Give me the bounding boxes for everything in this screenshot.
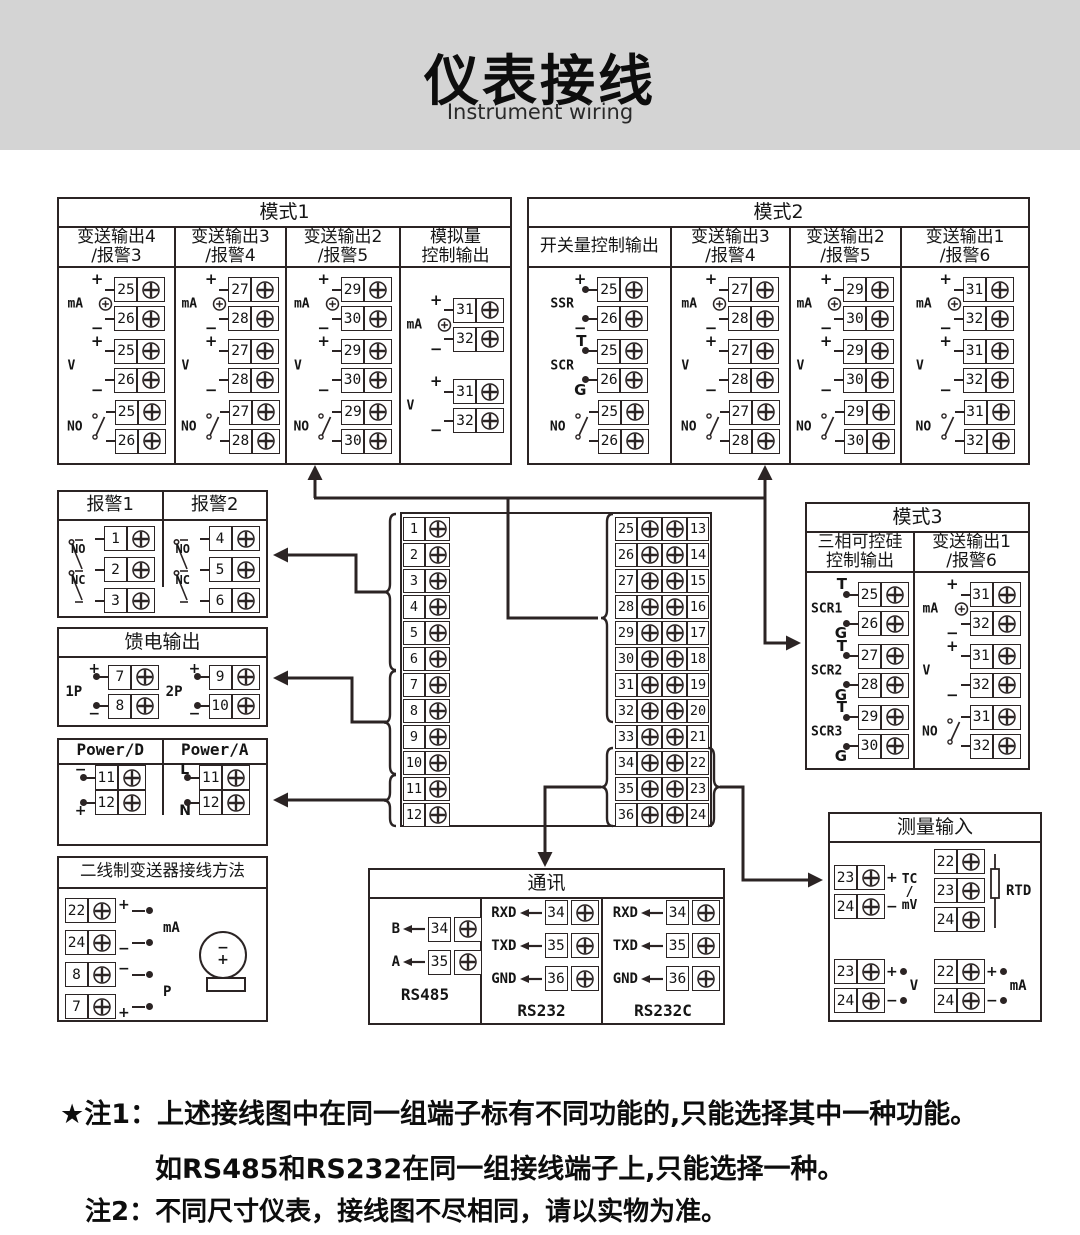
wire-group-v: +−V2930 bbox=[796, 339, 894, 393]
power-column-2: Power/AL11N12 bbox=[164, 740, 267, 815]
terminal-29: 29 bbox=[835, 400, 895, 425]
wire-line bbox=[220, 411, 229, 413]
terminal-row: 3119 bbox=[615, 673, 709, 697]
wire-line bbox=[200, 538, 209, 540]
current-source-icon bbox=[954, 602, 969, 617]
terminal-29: 29 bbox=[834, 277, 894, 302]
group-brace bbox=[384, 514, 396, 670]
terminal-number: 32 bbox=[453, 327, 476, 352]
terminal-number: 31 bbox=[963, 339, 986, 364]
pin-sign: − bbox=[886, 993, 898, 1009]
mode1-column-1: 变送输出4 /报警3+−mA2526+−V2526NO2526 bbox=[59, 228, 176, 463]
wire-line bbox=[955, 440, 964, 442]
terminal-30: 30 bbox=[849, 734, 909, 759]
phillips-screw-icon bbox=[122, 793, 142, 813]
terminal-number: 30 bbox=[843, 368, 866, 393]
phillips-screw-icon bbox=[141, 309, 161, 329]
note-2-prefix: 注2： bbox=[85, 1197, 155, 1227]
arrowhead-icon bbox=[273, 671, 288, 686]
wire-line bbox=[99, 705, 108, 707]
terminal-block: 1234567891011122513261427152816291730183… bbox=[400, 512, 712, 827]
switch-contact-icon bbox=[820, 404, 835, 450]
terminal-screw bbox=[881, 705, 909, 730]
terminal-column: 2728 bbox=[219, 277, 279, 331]
phillips-screw-icon bbox=[480, 329, 500, 349]
wire-line bbox=[86, 777, 95, 779]
terminal-screw bbox=[867, 429, 895, 454]
group-labels: +−mA bbox=[916, 277, 954, 331]
wire-arrow-icon bbox=[403, 924, 425, 934]
wire-line bbox=[95, 569, 104, 571]
phillips-screw-icon bbox=[458, 952, 478, 972]
note-1-prefix: ★注1： bbox=[60, 1099, 157, 1130]
column-header: 变送输出1 /报警6 bbox=[902, 228, 1028, 268]
terminal-screw bbox=[857, 894, 885, 919]
phillips-screw-icon bbox=[368, 370, 388, 390]
wire-group-v: +−V3132 bbox=[406, 379, 504, 433]
phillips-screw-icon bbox=[640, 805, 660, 825]
wire-line bbox=[444, 391, 453, 393]
phillips-screw-icon bbox=[755, 341, 775, 361]
terminal-2: 2 bbox=[95, 557, 162, 582]
terminal-number: 25 bbox=[597, 277, 620, 302]
terminal-number: 6 bbox=[403, 647, 425, 671]
wire-line bbox=[834, 379, 843, 381]
terminal-26: 26 bbox=[588, 368, 648, 393]
terminal-column: 2728 bbox=[849, 644, 909, 698]
wire-dot bbox=[900, 997, 907, 1004]
wire-group-v: +−V2526 bbox=[67, 339, 165, 393]
group-label: NO bbox=[181, 419, 197, 434]
terminal-number: 29 bbox=[615, 621, 637, 645]
wire-line bbox=[132, 974, 145, 976]
wire-arrow-icon bbox=[520, 941, 542, 951]
alarm-box: 报警1NONC123报警2NONC456 bbox=[57, 490, 268, 618]
terminal-screw bbox=[866, 339, 894, 364]
pin-row: B34 bbox=[368, 917, 482, 942]
phillips-screw-icon bbox=[665, 727, 685, 747]
terminal-number: 36 bbox=[545, 966, 568, 991]
phillips-screw-icon bbox=[428, 727, 448, 747]
terminal-screw bbox=[251, 339, 279, 364]
wiring-diagram-page: 仪表接线 Instrument wiring ★注1：上述接线图中在同一组端子标… bbox=[0, 0, 1080, 1235]
terminal-25: 25 bbox=[106, 400, 166, 425]
terminal-32: 32 bbox=[961, 611, 1021, 636]
group-labels: +−V bbox=[796, 339, 834, 393]
terminal-number: 35 bbox=[615, 777, 637, 801]
pin-row: 24− bbox=[934, 988, 1007, 1013]
group-brace bbox=[384, 671, 396, 774]
terminal-screw bbox=[637, 621, 662, 645]
phillips-screw-icon bbox=[990, 280, 1010, 300]
terminal-32: 32 bbox=[954, 306, 1014, 331]
terminal-screw bbox=[692, 933, 720, 958]
terminal-screw bbox=[752, 400, 780, 425]
wire-group-ma: +−mA2930 bbox=[796, 277, 894, 331]
pin-row: +9 bbox=[189, 665, 260, 690]
phillips-screw-icon bbox=[624, 309, 644, 329]
terminal-number: 25 bbox=[114, 277, 137, 302]
phillips-screw-icon bbox=[870, 341, 890, 361]
sign-bottom: − bbox=[820, 383, 833, 398]
terminal-27: 27 bbox=[849, 644, 909, 669]
phillips-screw-icon bbox=[255, 341, 275, 361]
terminal-column: 2728 bbox=[219, 339, 279, 393]
wire-arrow bbox=[520, 941, 542, 951]
terminal-number: 29 bbox=[843, 277, 866, 302]
interface-caption: RS232C bbox=[634, 1001, 692, 1020]
phillips-screw-icon bbox=[665, 649, 685, 669]
cluster-label-line: / bbox=[906, 886, 914, 899]
phillips-screw-icon bbox=[624, 370, 644, 390]
phillips-screw-icon bbox=[255, 309, 275, 329]
group-label: mA bbox=[923, 602, 939, 617]
wire-line bbox=[835, 411, 844, 413]
terminal-screw bbox=[637, 751, 662, 775]
terminal-screw bbox=[662, 569, 687, 593]
terminal-screw bbox=[425, 803, 450, 827]
terminal-30: 30 bbox=[835, 429, 895, 454]
terminal-screw bbox=[118, 765, 146, 790]
arrowhead-icon bbox=[538, 852, 553, 867]
relay-contact bbox=[940, 404, 955, 450]
phillips-screw-icon bbox=[122, 768, 142, 788]
terminal-row: 3523 bbox=[615, 777, 709, 801]
wire-line bbox=[105, 350, 114, 352]
column-body: TGSCR12526TGSCR22728TGSCR32930 bbox=[807, 573, 913, 768]
group-labels: +−mA bbox=[681, 277, 719, 331]
terminal-screw bbox=[881, 644, 909, 669]
terminal-number: 19 bbox=[687, 673, 709, 697]
terminal-number: 28 bbox=[229, 429, 252, 454]
terminal-screw bbox=[138, 400, 166, 425]
terminal-screw bbox=[986, 306, 1014, 331]
phillips-screw-icon bbox=[131, 560, 151, 580]
feed-output-title: 馈电输出 bbox=[59, 629, 266, 658]
wire-line bbox=[588, 318, 597, 320]
terminal-screw bbox=[986, 277, 1014, 302]
phillips-screw-icon bbox=[665, 805, 685, 825]
wire-line bbox=[849, 655, 858, 657]
two-wire-transmitter-box: 二线制变送器接线方法22+24−8−7+mAP−+ bbox=[57, 856, 268, 1022]
current-source bbox=[954, 602, 969, 617]
pin-row: TXD35 bbox=[485, 933, 599, 958]
ma-label: mA bbox=[163, 920, 180, 936]
terminal-26: 26 bbox=[588, 306, 648, 331]
terminal-column: 2930 bbox=[332, 339, 392, 393]
terminal-screw bbox=[881, 611, 909, 636]
wire-group-ma: +−mA2728 bbox=[681, 277, 779, 331]
sign-bottom: G bbox=[835, 749, 847, 764]
current-source bbox=[325, 297, 340, 312]
column-header: 变送输出3 /报警4 bbox=[672, 228, 789, 268]
pin-row: 24− bbox=[834, 988, 907, 1013]
terminal-screw bbox=[252, 429, 280, 454]
wire-line bbox=[200, 705, 209, 707]
wire-line bbox=[332, 440, 341, 442]
column-body: +−mA3132+−V3132NO3132 bbox=[902, 268, 1028, 463]
phillips-screw-icon bbox=[428, 753, 448, 773]
terminal-number: 30 bbox=[858, 734, 881, 759]
terminal-column: 22+24−8−7+ bbox=[65, 898, 153, 1019]
sign-top: + bbox=[946, 577, 959, 592]
pin-sign: + bbox=[986, 964, 998, 980]
terminal-column: 3132 bbox=[955, 400, 1015, 454]
terminal-number: 2 bbox=[104, 557, 127, 582]
current-source-icon bbox=[827, 297, 842, 312]
wire-line bbox=[444, 338, 453, 340]
sign-bottom: G bbox=[574, 383, 586, 398]
phillips-screw-icon bbox=[368, 280, 388, 300]
mode3-column-1: 三相可控硅 控制输出TGSCR12526TGSCR22728TGSCR32930 bbox=[807, 533, 915, 768]
terminal-column: 2728 bbox=[719, 339, 779, 393]
terminal-screw bbox=[662, 777, 687, 801]
terminal-number: 32 bbox=[964, 429, 987, 454]
wire-line bbox=[849, 716, 858, 718]
current-source bbox=[827, 297, 842, 312]
phillips-screw-icon bbox=[885, 736, 905, 756]
terminal-screw bbox=[957, 907, 985, 932]
terminal-column: 2728 bbox=[719, 277, 779, 331]
terminal-25: 25 bbox=[849, 582, 909, 607]
terminal-number: 31 bbox=[970, 705, 993, 730]
terminal-screw bbox=[857, 988, 885, 1013]
terminal-screw bbox=[637, 673, 662, 697]
terminal-screw bbox=[251, 277, 279, 302]
relay-contact bbox=[205, 404, 220, 450]
terminal-30: 30 bbox=[332, 306, 392, 331]
terminal-27: 27 bbox=[719, 339, 779, 364]
terminal-number: 22 bbox=[934, 959, 957, 984]
phillips-screw-icon bbox=[368, 341, 388, 361]
wire-group-no: NO2930 bbox=[293, 400, 392, 454]
phillips-screw-icon bbox=[756, 402, 776, 422]
sign-bottom: − bbox=[939, 383, 952, 398]
terminal-column: 23+24− bbox=[834, 959, 907, 1013]
terminal-number: 18 bbox=[687, 647, 709, 671]
terminal-screw bbox=[476, 408, 504, 433]
terminal-screw bbox=[620, 306, 648, 331]
column-body: +−mA3132+−V3132NO3132 bbox=[915, 573, 1028, 768]
wire-arrow bbox=[520, 908, 542, 918]
terminal-screw bbox=[137, 306, 165, 331]
terminal-number: 16 bbox=[687, 595, 709, 619]
terminal-number: 25 bbox=[615, 517, 637, 541]
wire-line bbox=[719, 318, 728, 320]
terminal-number: 34 bbox=[615, 751, 637, 775]
terminal-screw bbox=[571, 933, 599, 958]
nc-label: NC bbox=[71, 573, 85, 587]
group-label: mA bbox=[67, 297, 83, 312]
phillips-screw-icon bbox=[575, 969, 595, 989]
note-1-line2-text: 如RS485和RS232在同一组接线端子上,只能选择一种。 bbox=[155, 1154, 844, 1185]
terminal-number: 11 bbox=[403, 777, 425, 801]
phillips-screw-icon bbox=[92, 965, 112, 985]
terminal-number: 24 bbox=[834, 988, 857, 1013]
phillips-screw-icon bbox=[885, 614, 905, 634]
current-source bbox=[437, 317, 452, 332]
relay-contact bbox=[91, 404, 106, 450]
terminal-column: 2526 bbox=[106, 400, 166, 454]
terminal-number: 13 bbox=[687, 517, 709, 541]
phillips-screw-icon bbox=[696, 969, 716, 989]
wire-line bbox=[954, 318, 963, 320]
group-labels: TGSCR2 bbox=[811, 644, 849, 698]
current-source-icon bbox=[325, 297, 340, 312]
phillips-screw-icon bbox=[665, 779, 685, 799]
wire-line bbox=[588, 350, 597, 352]
terminal-number: 26 bbox=[597, 368, 620, 393]
terminal-row: 4 bbox=[403, 595, 450, 619]
pin-row: L11 bbox=[179, 765, 250, 790]
terminal-row: 12 bbox=[403, 803, 450, 827]
terminal-screw bbox=[620, 339, 648, 364]
phillips-screw-icon bbox=[141, 280, 161, 300]
wire-line bbox=[105, 318, 114, 320]
wire-junction-dot bbox=[146, 939, 153, 946]
power-columns: Power/D−11+12Power/AL11N12 bbox=[59, 740, 266, 815]
terminal-row: 5 bbox=[403, 621, 450, 645]
current-source-icon bbox=[98, 297, 113, 312]
terminal-screw bbox=[425, 543, 450, 567]
terminal-column: 3132 bbox=[961, 582, 1021, 636]
terminal-screw bbox=[571, 966, 599, 991]
terminal-number: 30 bbox=[341, 368, 364, 393]
sign-top: + bbox=[939, 272, 952, 287]
terminal-number: 26 bbox=[598, 429, 621, 454]
terminal-number: 23 bbox=[834, 865, 857, 890]
wire-line bbox=[849, 684, 858, 686]
terminal-number: 30 bbox=[341, 429, 364, 454]
mode3-column-2: 变送输出1 /报警6+−mA3132+−V3132NO3132 bbox=[915, 533, 1028, 768]
terminal-screw bbox=[454, 950, 482, 975]
terminal-number: 25 bbox=[114, 339, 137, 364]
terminal-screw bbox=[866, 277, 894, 302]
wire-line bbox=[849, 745, 858, 747]
phillips-screw-icon bbox=[226, 793, 246, 813]
phillips-screw-icon bbox=[696, 936, 716, 956]
terminal-number: 32 bbox=[453, 408, 476, 433]
terminal-number: 7 bbox=[108, 665, 131, 690]
current-source-icon bbox=[212, 297, 227, 312]
terminal-number: 27 bbox=[728, 277, 751, 302]
terminal-number: 26 bbox=[858, 611, 881, 636]
sign-top: + bbox=[205, 272, 218, 287]
terminal-screw bbox=[232, 588, 260, 613]
wire-junction-dot bbox=[146, 971, 153, 978]
sign-top: T bbox=[576, 334, 586, 349]
terminal-27: 27 bbox=[219, 277, 279, 302]
measure-cluster-v: 23+24−V bbox=[834, 959, 918, 1013]
wire-line bbox=[961, 745, 970, 747]
terminal-number: 25 bbox=[858, 582, 881, 607]
signal-label: GND bbox=[485, 971, 517, 987]
group-label: SCR2 bbox=[811, 663, 842, 678]
group-labels: NO bbox=[681, 400, 705, 454]
terminal-row: 1 bbox=[403, 517, 450, 541]
terminal-row: 11 bbox=[403, 777, 450, 801]
switch-contact-icon bbox=[91, 404, 106, 450]
terminal-number: 30 bbox=[341, 306, 364, 331]
terminal-number: 1 bbox=[104, 526, 127, 551]
terminal-screw bbox=[881, 673, 909, 698]
terminal-number: 25 bbox=[597, 339, 620, 364]
terminal-screw bbox=[364, 429, 392, 454]
signal-label: RXD bbox=[485, 905, 517, 921]
measure-cluster-tc: 23+24−TC/mV bbox=[834, 865, 917, 919]
wire-line bbox=[220, 440, 229, 442]
terminal-number: 27 bbox=[228, 339, 251, 364]
terminal-number: 8 bbox=[108, 694, 131, 719]
wire-line bbox=[719, 379, 728, 381]
terminal-32: 32 bbox=[444, 408, 504, 433]
phillips-screw-icon bbox=[575, 936, 595, 956]
transmitter-plus: + bbox=[217, 955, 229, 967]
arrowhead-icon bbox=[273, 548, 288, 563]
column-header: 开关量控制输出 bbox=[529, 228, 670, 268]
note-1-text: 上述接线图中在同一组端子标有不同功能的,只能选择其中一种功能。 bbox=[157, 1099, 977, 1130]
group-labels: TGSCR1 bbox=[811, 582, 849, 636]
sign-top: + bbox=[705, 272, 718, 287]
terminal-column: 22+24− bbox=[934, 959, 1007, 1013]
terminal-number: 22 bbox=[65, 898, 88, 923]
terminal-screw bbox=[138, 429, 166, 454]
terminal-number: 12 bbox=[95, 790, 118, 815]
sign-bottom: − bbox=[946, 688, 959, 703]
phillips-screw-icon bbox=[236, 560, 256, 580]
column-body: +−mA2930+−V2930NO2930 bbox=[287, 268, 399, 463]
terminal-1: 1 bbox=[95, 526, 162, 551]
power-column-1: Power/D−11+12 bbox=[59, 740, 164, 815]
signal-label: TXD bbox=[485, 938, 517, 954]
alarm-column-2: 报警2NONC456 bbox=[164, 492, 267, 587]
terminal-screw bbox=[364, 306, 392, 331]
terminal-column: 2930 bbox=[849, 705, 909, 759]
terminal-26: 26 bbox=[105, 368, 165, 393]
wire-group-v: +−V2728 bbox=[181, 339, 279, 393]
wire-line bbox=[834, 350, 843, 352]
wire-line bbox=[849, 594, 858, 596]
phillips-screw-icon bbox=[255, 370, 275, 390]
feed-group-2P: 2P+9−10 bbox=[166, 665, 260, 719]
phillips-screw-icon bbox=[665, 753, 685, 773]
terminal-row: 3321 bbox=[615, 725, 709, 749]
group-label: NO bbox=[67, 419, 83, 434]
phillips-screw-icon bbox=[142, 431, 162, 451]
terminal-column: +9−10 bbox=[189, 665, 260, 719]
group-labels: +−mA bbox=[181, 277, 219, 331]
terminal-31: 31 bbox=[961, 705, 1021, 730]
terminal-26: 26 bbox=[106, 429, 166, 454]
terminal-screw bbox=[425, 621, 450, 645]
terminal-screw bbox=[637, 569, 662, 593]
terminal-number: 7 bbox=[403, 673, 425, 697]
terminal-screw bbox=[232, 665, 260, 690]
terminal-number: 15 bbox=[687, 569, 709, 593]
terminal-column: 456 bbox=[200, 526, 267, 613]
phillips-screw-icon bbox=[861, 962, 881, 982]
wire-group-no: NO2728 bbox=[181, 400, 280, 454]
pin-row: GND36 bbox=[485, 966, 599, 991]
terminal-row: 3624 bbox=[615, 803, 709, 827]
two-wire-title: 二线制变送器接线方法 bbox=[59, 858, 266, 889]
terminal-column: 2526 bbox=[589, 400, 649, 454]
mode2-columns: 开关量控制输出+−SSR2526TGSCR2526NO2526变送输出3 /报警… bbox=[529, 228, 1028, 463]
phillips-screw-icon bbox=[142, 402, 162, 422]
terminal-number: 34 bbox=[666, 900, 689, 925]
terminal-screw bbox=[637, 647, 662, 671]
group-label: V bbox=[916, 358, 924, 373]
